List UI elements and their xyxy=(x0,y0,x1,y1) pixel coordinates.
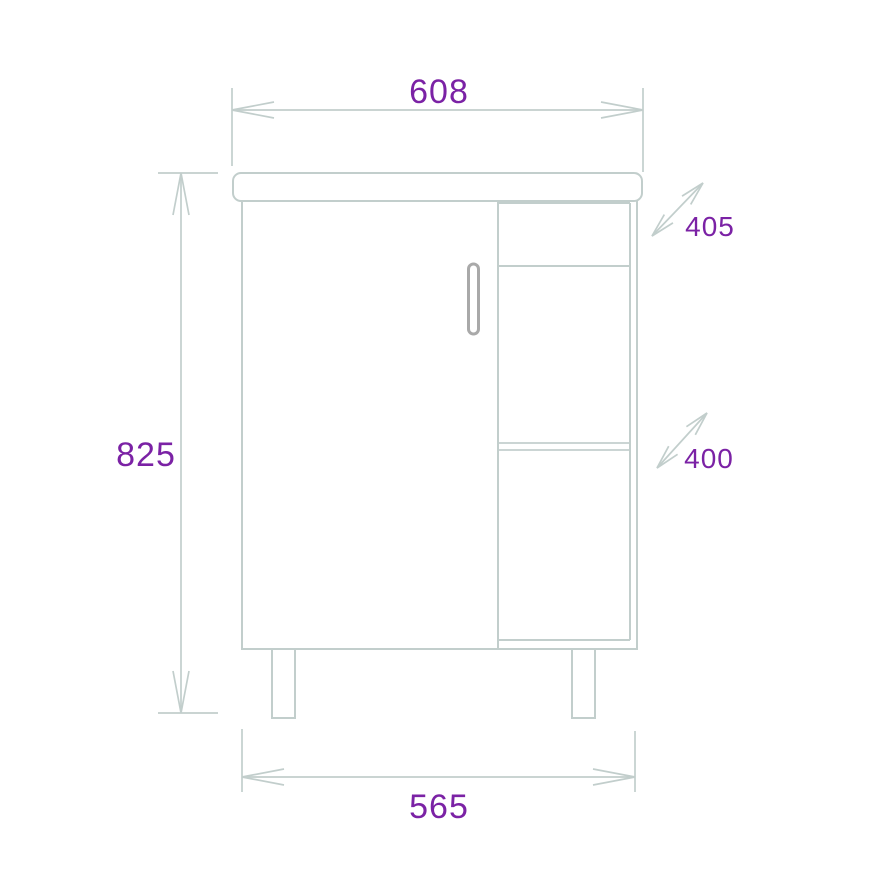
shelf-middle xyxy=(498,443,630,450)
dimension-lines xyxy=(158,88,707,792)
dim-label-overall-width: 608 xyxy=(409,75,469,109)
dim-label-overall-height: 825 xyxy=(116,438,176,472)
left-leg xyxy=(272,649,295,718)
countertop xyxy=(233,173,642,201)
dim-label-lower-depth: 400 xyxy=(684,445,734,473)
dim-label-bottom-width: 565 xyxy=(409,790,469,824)
cabinet-body xyxy=(233,173,642,718)
right-leg xyxy=(572,649,595,718)
door-handle xyxy=(469,264,479,334)
dim-label-upper-depth: 405 xyxy=(685,213,735,241)
technical-drawing-canvas: 608 825 405 400 565 xyxy=(0,0,886,886)
dimension-width-bottom xyxy=(242,729,635,792)
